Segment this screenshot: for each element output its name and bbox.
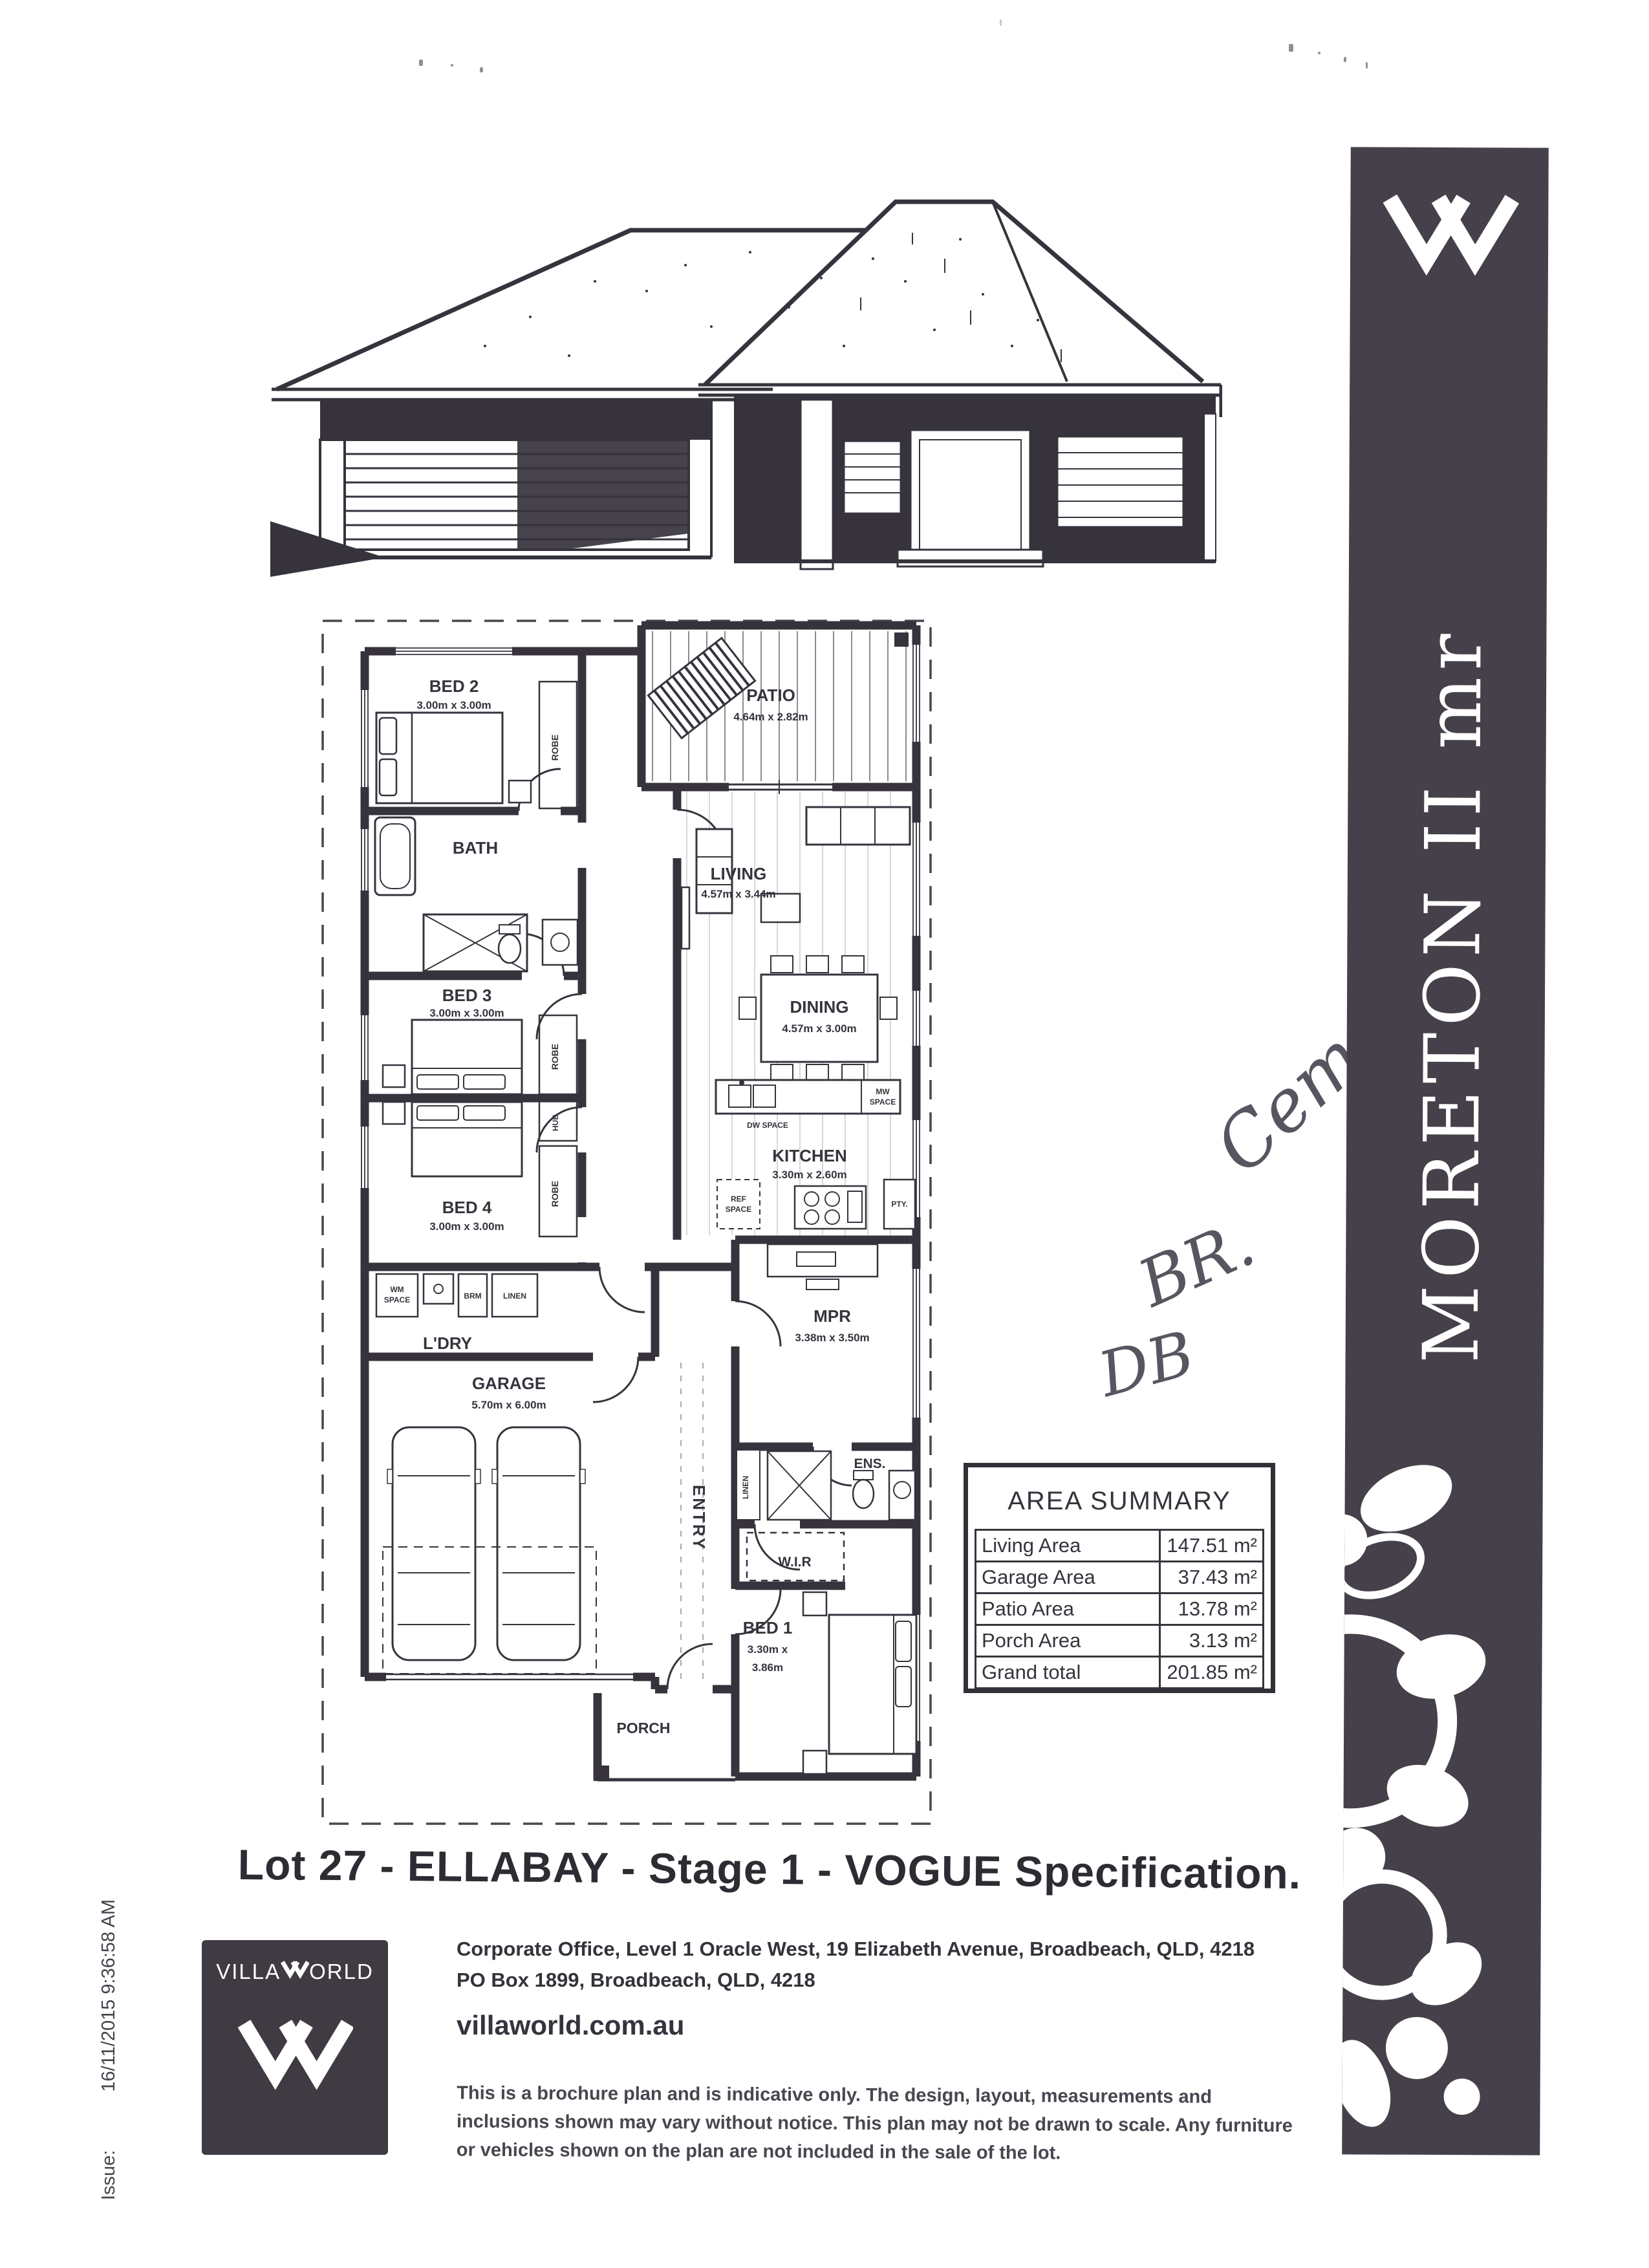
decorative-bubble-pattern: [1342, 1443, 1543, 2155]
villaworld-logo-box: VILLA ORLD: [202, 1940, 388, 2155]
rear-roof-fascia: [272, 389, 773, 400]
window: [911, 991, 921, 1046]
room-label-living: LIVING: [711, 864, 767, 883]
room-label-bed3: BED 3: [442, 986, 492, 1005]
window: [911, 1269, 921, 1418]
table-row: Garage Area 37.43 m²: [976, 1562, 1264, 1593]
area-summary-table: AREA SUMMARY Living Area 147.51 m² Garag…: [964, 1463, 1275, 1693]
area-row-label: Patio Area: [976, 1593, 1160, 1625]
garage-block: [270, 400, 711, 577]
model-name-vertical: MORETON II mr: [1403, 627, 1503, 1363]
villaworld-w-icon: [1380, 190, 1520, 278]
villaworld-w-icon: [281, 1960, 309, 1979]
room-label-wir: W.I.R: [778, 1555, 811, 1570]
issue-label: Issue:: [98, 2150, 120, 2200]
room-dims-bed1-l1: 3.30m x: [748, 1643, 788, 1656]
brand-text-right: ORLD: [309, 1960, 374, 1984]
room-label-mpr: MPR: [814, 1306, 851, 1326]
entry-block: [734, 394, 1216, 569]
scan-speck: [419, 59, 423, 66]
disclaimer-text: This is a brochure plan and is indicativ…: [457, 2079, 1311, 2169]
label-mw-space: MW: [876, 1087, 890, 1096]
room-label-bed1: BED 1: [743, 1618, 793, 1637]
window: [360, 690, 370, 787]
room-dims-kitchen: 3.30m x 2.60m: [772, 1169, 846, 1181]
villaworld-w-icon-large: [237, 2014, 353, 2093]
room-label-porch: PORCH: [616, 1720, 670, 1736]
room-dims-patio: 4.64m x 2.82m: [733, 711, 808, 723]
area-row-label: Grand total: [976, 1657, 1160, 1689]
portico-column: [801, 400, 833, 569]
window: [911, 645, 921, 742]
room-label-bath: BATH: [453, 838, 498, 858]
footer-address-block: Corporate Office, Level 1 Oracle West, 1…: [457, 1938, 1310, 2166]
area-row-label: Garage Area: [976, 1562, 1160, 1593]
area-row-value: 147.51 m²: [1159, 1530, 1263, 1562]
room-dims-bed3: 3.00m x 3.00m: [429, 1007, 504, 1019]
bed3-furniture: [383, 1020, 522, 1094]
issue-timestamp-margin: Issue: 16/11/2015 9:36:58 AM: [98, 1899, 120, 2200]
room-dims-living: 4.57m x 3.44m: [701, 888, 775, 900]
room-dims-bed2: 3.00m x 3.00m: [416, 699, 491, 711]
mpr-furniture: [768, 1244, 878, 1290]
house-elevation-drawing: [259, 162, 1222, 589]
garage-car: [387, 1427, 480, 1660]
closet-label-robe: ROBE: [550, 1044, 560, 1070]
room-label-bed2: BED 2: [429, 676, 479, 696]
label-pty: PTY.: [891, 1200, 907, 1209]
scan-speck: [1366, 62, 1368, 69]
room-dims-garage: 5.70m x 6.00m: [471, 1399, 546, 1411]
room-label-dining: DINING: [790, 997, 849, 1017]
scan-speck: [480, 67, 483, 72]
scan-speck: [1318, 52, 1320, 54]
handwritten-annotation: BR.: [1128, 1205, 1266, 1321]
closet-label-robe: ROBE: [550, 735, 560, 761]
label-mw-space: SPACE: [870, 1097, 896, 1107]
window: [911, 823, 921, 936]
room-label-ldry: L'DRY: [423, 1334, 472, 1353]
table-row: Patio Area 13.78 m²: [976, 1593, 1264, 1625]
room-label-kitchen: KITCHEN: [772, 1146, 847, 1165]
label-brm: BRM: [464, 1291, 481, 1301]
disclaimer-line3: or vehicles shown on the plan are not in…: [457, 2136, 1310, 2169]
window: [396, 646, 512, 656]
area-row-value: 37.43 m²: [1159, 1562, 1263, 1593]
bed2-furniture: [376, 713, 531, 803]
villaworld-wordmark: VILLA ORLD: [216, 1960, 374, 1984]
scan-speck: [1344, 57, 1346, 62]
entry-step: [898, 550, 1043, 567]
patio-sliding-door: [729, 780, 832, 794]
handwritten-annotation: DB: [1092, 1318, 1201, 1411]
table-row: Porch Area 3.13 m²: [976, 1625, 1264, 1657]
address-line1: Corporate Office, Level 1 Oracle West, 1…: [457, 1938, 1310, 1961]
porch-pillar: [594, 1766, 609, 1781]
room-label-ens: ENS.: [854, 1456, 885, 1471]
garage-door-shadow: [517, 440, 689, 550]
room-dims-mpr: 3.38m x 3.50m: [795, 1332, 869, 1344]
room-dims-bed4: 3.00m x 3.00m: [429, 1220, 504, 1233]
area-row-value: 201.85 m²: [1159, 1657, 1263, 1689]
patio-corner-post: [894, 632, 909, 647]
label-linen: LINEN: [741, 1476, 750, 1499]
page-title: Lot 27 - ELLABAY - Stage 1 - VOGUE Speci…: [188, 1839, 1352, 1899]
disclaimer-line2: inclusions shown may vary without notice…: [457, 2108, 1310, 2141]
label-wm-space: WM: [390, 1285, 404, 1294]
eave-shadow-band: [320, 400, 711, 440]
address-line2: PO Box 1899, Broadbeach, QLD, 4218: [457, 1969, 1310, 1992]
ensuite-fixtures: [737, 1450, 915, 1520]
scan-speck: [451, 64, 453, 67]
bed1-furniture: [803, 1592, 916, 1774]
slat-window-right: [1057, 437, 1183, 527]
window: [360, 829, 370, 891]
room-dims-dining: 4.57m x 3.00m: [782, 1022, 856, 1035]
model-banner-sidebar: MORETON II mr: [1342, 147, 1549, 2155]
window: [360, 1127, 370, 1188]
window: [360, 1015, 370, 1080]
scanned-brochure-page: BED 2 3.00m x 3.00m PATIO 4.64m x 2.82m …: [0, 0, 1649, 2268]
room-label-entry: ENTRY: [689, 1485, 709, 1551]
brand-text-left: VILLA: [216, 1960, 281, 1984]
room-dims-bed1-l2: 3.86m: [752, 1661, 783, 1674]
bed4-furniture: [383, 1102, 522, 1176]
label-wm-space: SPACE: [384, 1295, 410, 1304]
label-ref-space: SPACE: [726, 1205, 751, 1214]
area-row-label: Living Area: [976, 1530, 1160, 1562]
room-label-bed4: BED 4: [442, 1198, 492, 1217]
disclaimer-line1: This is a brochure plan and is indicativ…: [457, 2079, 1310, 2112]
table-row: Living Area 147.51 m²: [976, 1530, 1264, 1562]
closet-label-hub: HUB: [551, 1114, 560, 1131]
area-row-value: 13.78 m²: [1159, 1593, 1263, 1625]
entry-door: [911, 430, 1030, 561]
closet-label-robe: ROBE: [550, 1181, 560, 1207]
area-row-label: Porch Area: [976, 1625, 1160, 1657]
scan-speck: [1289, 44, 1293, 52]
patio-rug: [648, 638, 755, 739]
area-summary-title: AREA SUMMARY: [975, 1471, 1264, 1529]
website-link[interactable]: villaworld.com.au: [457, 2010, 1310, 2041]
garage-car: [492, 1427, 585, 1660]
floor-plan: BED 2 3.00m x 3.00m PATIO 4.64m x 2.82m …: [315, 616, 939, 1835]
issue-timestamp: 16/11/2015 9:36:58 AM: [98, 1899, 120, 2092]
room-label-garage: GARAGE: [472, 1374, 546, 1393]
area-row-value: 3.13 m²: [1159, 1625, 1263, 1657]
room-label-patio: PATIO: [746, 686, 795, 705]
label-ref-space: REF: [731, 1194, 746, 1204]
dining-furniture: [739, 956, 897, 1081]
scan-speck: [1000, 19, 1002, 26]
label-linen: LINEN: [503, 1291, 526, 1301]
label-dw-space: DW SPACE: [747, 1121, 788, 1130]
slat-window-left: [844, 441, 901, 513]
wall-end-sliver: [1204, 414, 1216, 561]
table-row: Grand total 201.85 m²: [976, 1657, 1264, 1689]
